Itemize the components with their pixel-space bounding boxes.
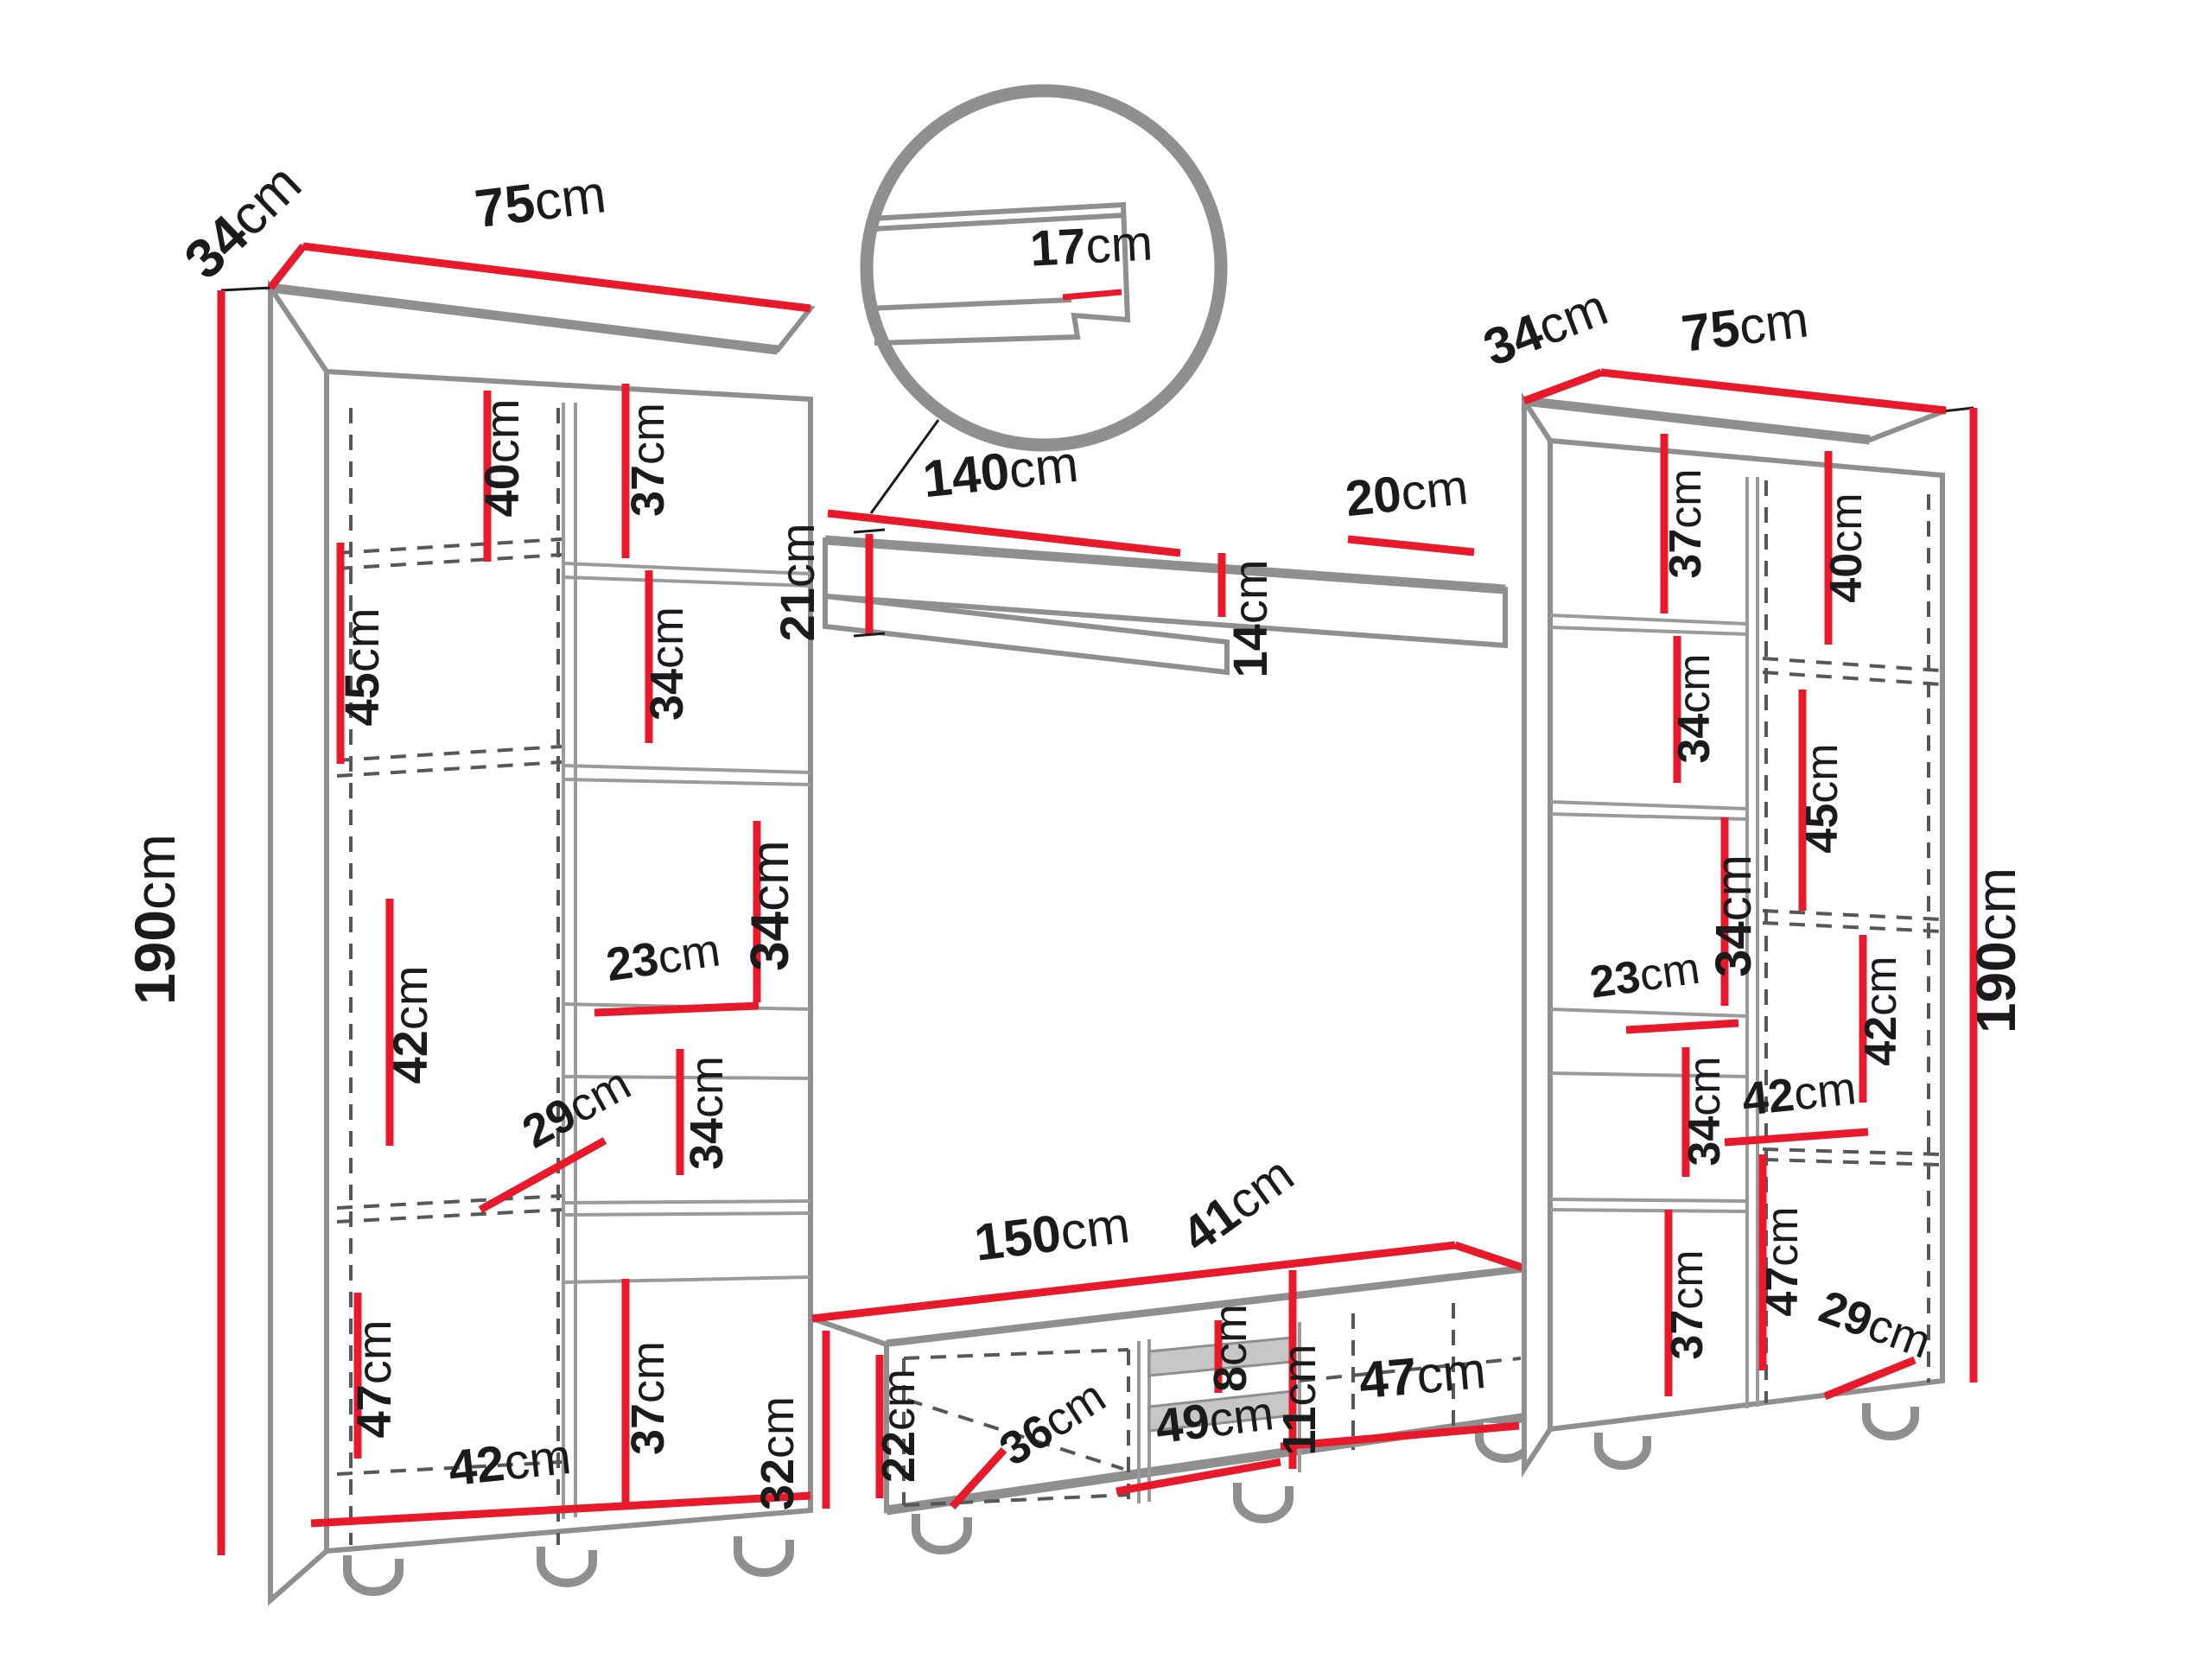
right-cabinet-section-45-label: 45cm bbox=[1797, 743, 1847, 853]
left-cabinet-shelf-34c-label: 34cm bbox=[681, 1056, 733, 1170]
right-cabinet-section-47-label: 47cm bbox=[1758, 1206, 1808, 1316]
tv-stand-lower-slot-label: 11cm bbox=[1274, 1344, 1325, 1455]
wall-shelf-depth-label: 20cm bbox=[1343, 459, 1471, 527]
tv-stand-left-section-label: 22cm bbox=[873, 1369, 925, 1483]
right-cabinet-shelf-34b-label: 34cm bbox=[1706, 855, 1762, 977]
right-cabinet-shelf-37-label: 37cm bbox=[1661, 468, 1711, 578]
left-cabinet-section-42-label: 42cm bbox=[383, 966, 437, 1084]
detail-lip-height-label: 17cm bbox=[1028, 214, 1154, 276]
wall-shelf-inner-height-label: 14cm bbox=[1223, 560, 1277, 678]
right-cabinet-height-label: 190cm bbox=[1965, 868, 2027, 1033]
diagram-canvas: 34cm 75cm 190cm 40cm 45cm 42cm 47cm 37cm… bbox=[0, 0, 2212, 1659]
tv-stand-depth-label: 41cm bbox=[1172, 1146, 1304, 1263]
wall-shelf-length-label: 140cm bbox=[920, 435, 1081, 508]
left-cabinet: 34cm 75cm 190cm 40cm 45cm 42cm 47cm 37cm… bbox=[123, 152, 810, 1600]
left-cabinet-shelf-37-label: 37cm bbox=[622, 403, 674, 517]
tv-stand-length-label: 150cm bbox=[971, 1195, 1133, 1271]
right-cabinet: 34cm 75cm 190cm 37cm 34cm 34cm 23cm 34cm… bbox=[1476, 277, 2027, 1469]
left-cabinet-section-40-label: 40cm bbox=[474, 399, 529, 518]
wall-shelf-outer-height-label: 21cm bbox=[770, 524, 824, 642]
right-cabinet-shelf-34c-label: 34cm bbox=[1680, 1056, 1730, 1166]
tv-stand: 150cm 41cm 32cm 22cm 36cm 8cm 49cm 11cm … bbox=[752, 1146, 1531, 1550]
right-cabinet-shelf-34a-label: 34cm bbox=[1669, 653, 1719, 763]
right-cabinet-side-panel bbox=[1524, 401, 1550, 1469]
left-cabinet-shelf-37b-label: 37cm bbox=[622, 1341, 674, 1455]
tv-stand-upper-slot-label: 8cm bbox=[1205, 1304, 1256, 1392]
left-cabinet-width-label: 75cm bbox=[472, 164, 609, 239]
tv-stand-right-section-label: 47cm bbox=[1357, 1341, 1488, 1410]
left-cabinet-section-45-label: 45cm bbox=[334, 608, 389, 727]
wall-shelf: 140cm 20cm 21cm 14cm bbox=[770, 435, 1505, 678]
right-cabinet-depth-label: 34cm bbox=[1476, 277, 1615, 377]
left-cabinet-section-47-label: 47cm bbox=[346, 1320, 401, 1439]
right-cabinet-width-label: 75cm bbox=[1679, 289, 1812, 362]
right-cabinet-shelf-37b-label: 37cm bbox=[1662, 1249, 1713, 1359]
right-cabinet-section-40-label: 40cm bbox=[1821, 493, 1872, 602]
left-cabinet-height-label: 190cm bbox=[123, 834, 187, 1005]
left-cabinet-shelf-34a-label: 34cm bbox=[641, 607, 693, 721]
right-cabinet-section-42-label: 42cm bbox=[1856, 956, 1906, 1065]
left-cabinet-shelf-34b-label: 34cm bbox=[741, 840, 800, 971]
tv-stand-height-label: 32cm bbox=[752, 1396, 804, 1510]
furniture-dimension-diagram: 34cm 75cm 190cm 40cm 45cm 42cm 47cm 37cm… bbox=[0, 0, 2212, 1659]
left-cabinet-side-panel bbox=[270, 288, 327, 1600]
